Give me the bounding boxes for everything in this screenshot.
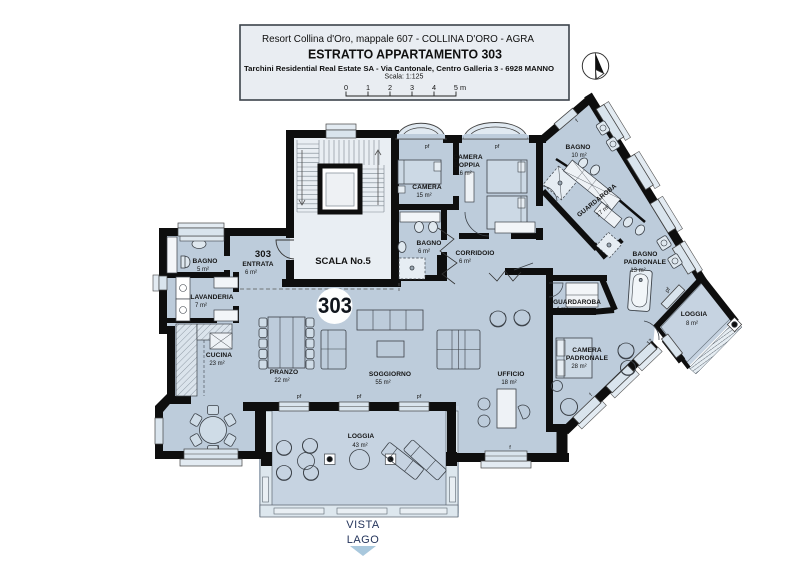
svg-text:1: 1 [366,83,370,92]
svg-text:303: 303 [318,293,352,318]
svg-text:23 m²: 23 m² [209,361,224,367]
svg-text:2: 2 [388,83,392,92]
svg-text:BAGNO: BAGNO [192,258,217,265]
svg-text:8 m²: 8 m² [686,321,698,327]
svg-text:6 m²: 6 m² [418,249,430,255]
svg-text:10 m²: 10 m² [571,153,586,159]
svg-text:LOGGIA: LOGGIA [348,433,375,440]
svg-text:4: 4 [432,83,436,92]
svg-text:ESTRATTO APPARTAMENTO 303: ESTRATTO APPARTAMENTO 303 [308,46,502,61]
svg-text:6 m²: 6 m² [245,270,257,276]
svg-text:ENTRATA: ENTRATA [242,261,273,268]
svg-text:pf: pf [425,144,430,150]
svg-text:18 m²: 18 m² [501,380,516,386]
svg-text:SCALA No.5: SCALA No.5 [315,256,371,267]
svg-text:43 m²: 43 m² [352,443,367,449]
svg-text:PADRONALE: PADRONALE [566,355,609,362]
svg-text:PRANZO: PRANZO [270,369,298,376]
svg-text:CUCINA: CUCINA [206,352,232,359]
svg-text:Scala: 1:125: Scala: 1:125 [385,74,424,81]
svg-text:pf: pf [417,394,422,400]
svg-text:BAGNO: BAGNO [416,240,441,247]
svg-text:4 m²: 4 m² [556,307,568,313]
svg-text:LAGO: LAGO [347,534,380,546]
svg-text:pf: pf [495,144,500,150]
svg-text:22 m²: 22 m² [274,378,289,384]
svg-text:VISTA: VISTA [346,519,380,531]
svg-text:GUARDAROBA: GUARDAROBA [553,299,601,306]
svg-text:13 m²: 13 m² [630,268,645,274]
svg-text:SOGGIORNO: SOGGIORNO [369,371,411,378]
svg-text:CAMERA: CAMERA [453,154,483,161]
svg-text:5 m²: 5 m² [197,267,209,273]
svg-text:28 m²: 28 m² [571,364,586,370]
svg-text:Resort Collina d'Oro, mappale: Resort Collina d'Oro, mappale 607 - COLL… [262,34,534,45]
svg-text:pf: pf [357,394,362,400]
svg-text:BAGNO: BAGNO [565,144,590,151]
svg-text:16 m²: 16 m² [456,171,471,177]
svg-text:DOPPIA: DOPPIA [454,162,480,169]
svg-text:Tarchini Residential Real Esta: Tarchini Residential Real Estate SA - Vi… [244,64,554,73]
svg-text:BAGNO: BAGNO [632,251,657,258]
svg-text:7 m²: 7 m² [195,303,207,309]
svg-text:LAVANDERIA: LAVANDERIA [190,294,233,301]
svg-text:5 m: 5 m [454,83,466,92]
svg-text:303: 303 [255,249,271,260]
svg-text:PADRONALE: PADRONALE [624,259,667,266]
svg-text:55 m²: 55 m² [375,380,390,386]
svg-text:CAMERA: CAMERA [412,184,442,191]
svg-text:15 m²: 15 m² [416,193,431,199]
svg-text:6 m²: 6 m² [459,259,471,265]
svg-text:pf: pf [297,394,302,400]
svg-text:CAMERA: CAMERA [572,347,602,354]
svg-text:0: 0 [344,83,348,92]
svg-text:UFFICIO: UFFICIO [497,371,524,378]
svg-text:3: 3 [410,83,414,92]
svg-text:LOGGIA: LOGGIA [681,311,708,318]
svg-text:CORRIDOIO: CORRIDOIO [456,250,495,257]
